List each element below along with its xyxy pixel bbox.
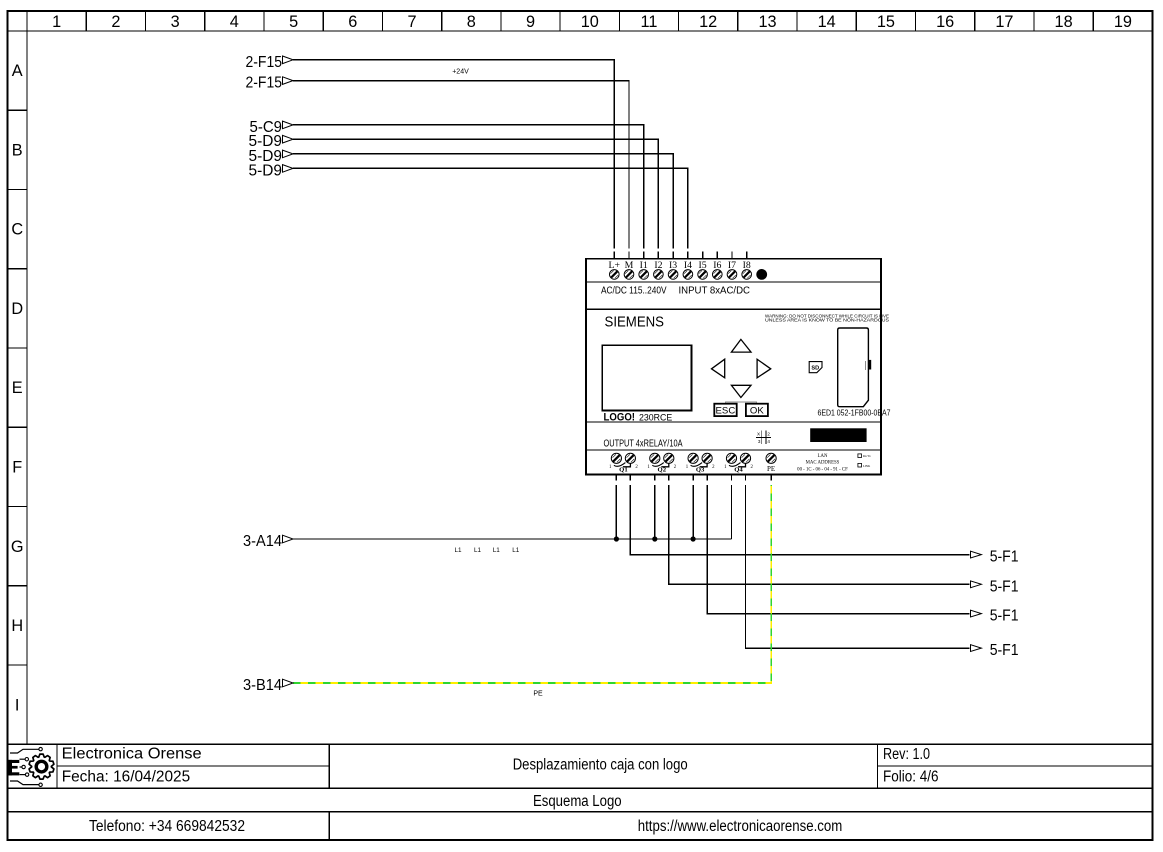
svg-text:https://www.electronicaorense.: https://www.electronicaorense.com [638,818,843,835]
svg-text:Folio: 4/6: Folio: 4/6 [883,769,939,786]
svg-text:L1: L1 [493,547,501,554]
svg-text:2-F15: 2-F15 [246,75,283,92]
svg-text:2-F15: 2-F15 [246,54,283,71]
svg-text:G: G [11,538,24,556]
svg-text:E: E [12,379,23,397]
svg-text:19: 19 [1114,13,1132,31]
svg-text:Rev: 1.0: Rev: 1.0 [883,746,930,763]
svg-text:5: 5 [289,13,298,31]
svg-text:8: 8 [467,13,476,31]
svg-text:D: D [11,300,23,318]
svg-text:2: 2 [767,432,770,437]
svg-text:16: 16 [936,13,954,31]
svg-text:6: 6 [348,13,357,31]
svg-text:5-D9: 5-D9 [249,162,283,179]
svg-text:PE: PE [767,465,775,473]
svg-text:5-F1: 5-F1 [990,608,1019,625]
svg-text:+24V: +24V [452,69,469,76]
svg-text:1: 1 [52,13,61,31]
svg-text:L1: L1 [454,547,462,554]
svg-text:A: A [12,62,23,80]
svg-text:9: 9 [526,13,535,31]
svg-text:I: I [15,696,20,714]
svg-text:AC/DC 115..240V: AC/DC 115..240V [601,286,667,297]
svg-text:17: 17 [995,13,1013,31]
svg-text:LINK: LINK [863,464,871,468]
svg-text:00 - 1C - 06 - 04 - 91 - CF: 00 - 1C - 06 - 04 - 91 - CF [797,468,848,473]
svg-text:5-F1: 5-F1 [990,549,1019,566]
svg-text:15: 15 [877,13,895,31]
svg-text:230RCE: 230RCE [639,413,672,423]
svg-text:Q4: Q4 [734,467,743,474]
svg-text:13: 13 [758,13,776,31]
svg-text:5-F1: 5-F1 [990,642,1019,659]
svg-text:11: 11 [641,13,658,31]
svg-text:LOGO!: LOGO! [604,412,636,424]
svg-text:Electronica Orense: Electronica Orense [62,746,202,763]
svg-text:Rx/Tx: Rx/Tx [863,454,871,458]
svg-text:2: 2 [111,13,120,31]
svg-text:4: 4 [230,13,239,31]
svg-text:INPUT 8xAC/DC: INPUT 8xAC/DC [679,286,751,297]
svg-text:3: 3 [171,13,180,31]
svg-text:MAC ADDRESS: MAC ADDRESS [806,460,840,465]
svg-text:12: 12 [699,13,717,31]
svg-text:7: 7 [407,13,416,31]
svg-text:UNLESS AREA IS KNOW TO BE NON-: UNLESS AREA IS KNOW TO BE NON-HAZARDOUS [765,318,889,323]
svg-text:4: 4 [767,439,770,444]
svg-text:L1: L1 [474,547,482,554]
svg-text:Q2: Q2 [658,467,667,474]
svg-text:3-B14: 3-B14 [243,677,282,694]
svg-text:3-A14: 3-A14 [243,533,282,550]
svg-text:Telefono: +34 669842532: Telefono: +34 669842532 [89,818,245,835]
svg-text:5-F1: 5-F1 [990,578,1019,595]
svg-text:6ED1 052-1FB00-0BA7: 6ED1 052-1FB00-0BA7 [818,408,891,417]
svg-text:Q1: Q1 [619,467,628,474]
svg-text:PE: PE [533,691,543,698]
svg-text:ESC: ESC [716,405,736,416]
svg-text:Desplazamiento caja con logo: Desplazamiento caja con logo [513,757,688,774]
svg-text:H: H [11,617,23,635]
svg-text:C: C [11,221,23,239]
svg-text:SD: SD [811,365,819,371]
svg-text:10: 10 [581,13,599,31]
svg-text:OUTPUT 4xRELAY/10A: OUTPUT 4xRELAY/10A [604,438,683,449]
svg-text:X: X [757,432,760,437]
svg-text:SIEMENS: SIEMENS [605,314,665,331]
svg-text:L1: L1 [512,547,520,554]
svg-text:18: 18 [1055,13,1073,31]
svg-text:14: 14 [818,13,836,31]
svg-text:F: F [12,459,22,477]
svg-text:Esquema Logo: Esquema Logo [533,793,622,810]
svg-text:LAN: LAN [818,454,828,459]
svg-text:Q3: Q3 [696,467,705,474]
svg-text:OK: OK [750,405,764,416]
svg-text:B: B [12,142,23,160]
svg-text:3: 3 [758,439,761,444]
svg-text:Fecha: 16/04/2025: Fecha: 16/04/2025 [62,769,191,786]
